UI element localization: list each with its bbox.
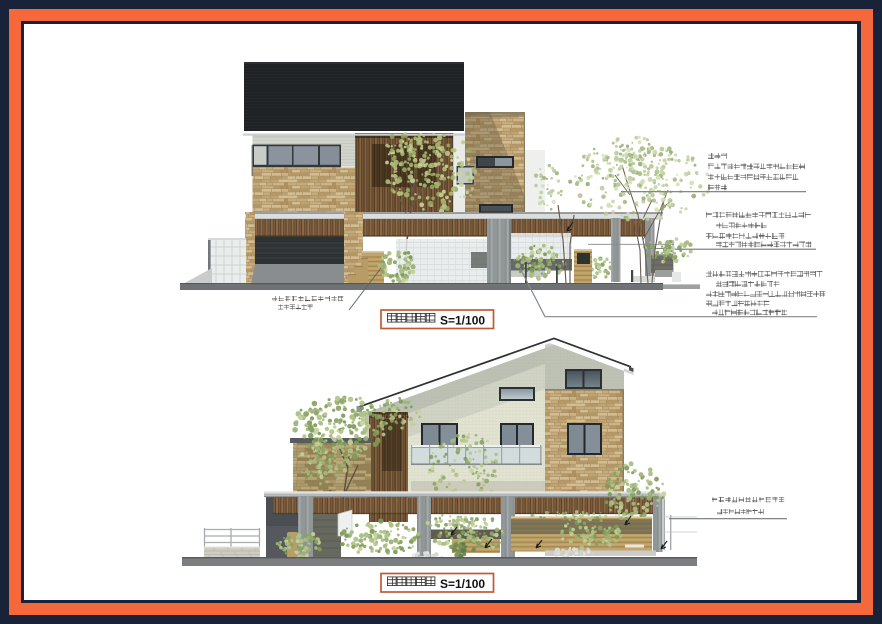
svg-text:S=1/100: S=1/100 (440, 314, 485, 328)
svg-text:S=1/100: S=1/100 (440, 577, 485, 591)
